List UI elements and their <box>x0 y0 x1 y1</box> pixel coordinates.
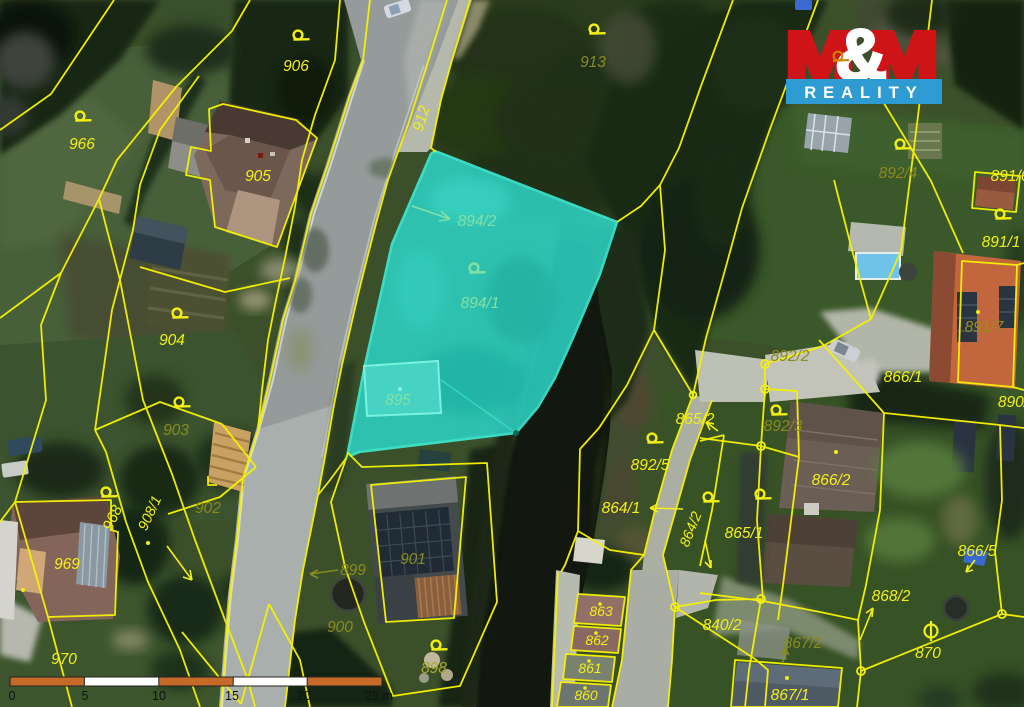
svg-text:913: 913 <box>580 54 606 71</box>
svg-text:894/1: 894/1 <box>461 295 500 312</box>
svg-text:905: 905 <box>245 168 271 185</box>
svg-text:865/1: 865/1 <box>725 525 764 542</box>
svg-text:900: 900 <box>327 619 353 636</box>
svg-text:895: 895 <box>385 392 411 409</box>
svg-text:892/3: 892/3 <box>764 418 803 435</box>
svg-text:15: 15 <box>225 689 239 703</box>
svg-text:891/1: 891/1 <box>982 234 1021 251</box>
svg-text:970: 970 <box>51 651 77 668</box>
svg-text:864/1: 864/1 <box>602 500 641 517</box>
svg-text:870: 870 <box>915 645 941 662</box>
svg-text:5: 5 <box>82 689 89 703</box>
svg-text:902: 902 <box>195 500 221 517</box>
svg-text:0: 0 <box>9 689 16 703</box>
svg-text:901: 901 <box>400 551 426 568</box>
svg-text:865/2: 865/2 <box>676 411 715 428</box>
svg-text:20: 20 <box>297 689 311 703</box>
svg-text:969: 969 <box>54 556 80 573</box>
svg-text:25 m: 25 m <box>365 689 393 703</box>
svg-text:898: 898 <box>421 660 447 677</box>
svg-text:899: 899 <box>340 562 366 579</box>
svg-text:REALITY: REALITY <box>804 84 924 102</box>
svg-text:890/: 890/ <box>998 394 1024 411</box>
svg-text:867/2: 867/2 <box>784 635 823 652</box>
svg-text:892/5: 892/5 <box>631 457 670 474</box>
svg-text:892/4: 892/4 <box>879 165 918 182</box>
svg-text:891/6: 891/6 <box>991 168 1024 185</box>
svg-text:866/2: 866/2 <box>812 472 851 489</box>
svg-text:866/5: 866/5 <box>958 543 997 560</box>
svg-text:840/2: 840/2 <box>703 617 742 634</box>
svg-text:867/1: 867/1 <box>771 687 810 704</box>
svg-text:966: 966 <box>69 136 95 153</box>
svg-text:866/1: 866/1 <box>884 369 923 386</box>
svg-text:868/2: 868/2 <box>872 588 911 605</box>
svg-text:891/7: 891/7 <box>965 319 1005 336</box>
svg-text:894/2: 894/2 <box>458 213 497 230</box>
svg-text:892/2: 892/2 <box>771 348 810 365</box>
svg-text:903: 903 <box>163 422 189 439</box>
svg-text:906: 906 <box>283 58 309 75</box>
svg-text:10: 10 <box>152 689 166 703</box>
svg-text:904: 904 <box>159 332 185 349</box>
